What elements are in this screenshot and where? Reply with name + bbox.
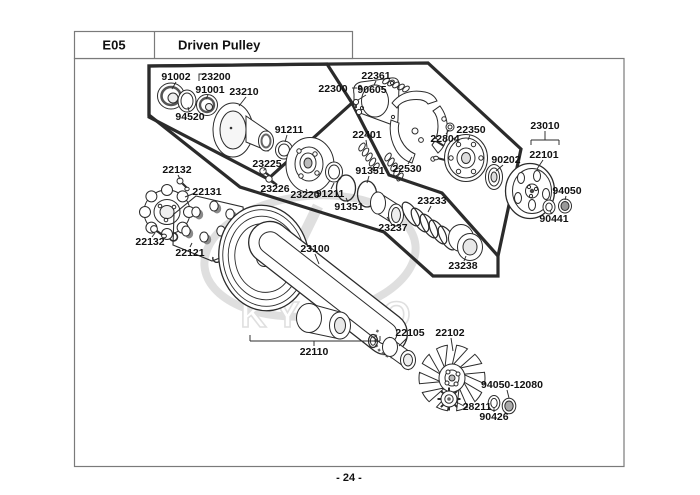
part-label-22121: 22121 (175, 247, 204, 259)
part-label-22131: 22131 (192, 186, 221, 198)
section-code: E05 (102, 38, 125, 53)
catalog-page: KYMCO E05 Driven Pulley - 24 - (0, 0, 700, 495)
washer-90441-drawing (543, 200, 555, 214)
part-label-22132-bot: 22132 (135, 236, 164, 248)
part-label-22132-top: 22132 (162, 164, 191, 176)
part-label-23233: 23233 (417, 195, 446, 207)
part-label-91211-mid: 91211 (316, 188, 345, 200)
ring-91211-mid-drawing (326, 162, 343, 182)
part-label-23238: 23238 (448, 260, 477, 272)
part-label-23010: 23010 (530, 120, 559, 132)
part-label-22101: 22101 (529, 149, 558, 161)
pulley-23220-drawing (286, 138, 334, 193)
part-label-94520: 94520 (175, 111, 204, 123)
part-label-22350: 22350 (456, 124, 485, 136)
part-label-90426: 90426 (479, 411, 508, 423)
part-label-22102: 22102 (435, 327, 464, 339)
part-label-91002: 91002 (161, 71, 190, 83)
part-label-91351-low: 91351 (334, 201, 363, 213)
part-label-90441: 90441 (539, 213, 568, 225)
part-label-91351-up: 91351 (355, 165, 384, 177)
part-label-23225: 23225 (252, 158, 281, 170)
page-background (0, 0, 700, 495)
part-label-22401: 22401 (352, 129, 381, 141)
page-number: - 24 - (336, 472, 362, 484)
part-label-22110: 22110 (300, 346, 329, 358)
page-title: Driven Pulley (178, 38, 261, 53)
part-label-22300: 22300 (318, 83, 347, 95)
part-label-91211-top: 91211 (275, 124, 304, 136)
part-label-23237: 23237 (378, 222, 407, 234)
bearing-90202-drawing (486, 165, 503, 190)
part-label-23100: 23100 (300, 243, 329, 255)
part-label-23226: 23226 (260, 183, 289, 195)
part-label-94050: 94050 (552, 185, 581, 197)
part-label-94050-12080: 94050-12080 (481, 379, 543, 391)
ratchet-28211-drawing (438, 388, 461, 411)
part-label-22105: 22105 (395, 327, 424, 339)
part-label-90605: 90605 (357, 84, 386, 96)
part-label-91001: 91001 (195, 84, 224, 96)
washer-94520-drawing (178, 90, 196, 112)
part-label-22804: 22804 (430, 133, 459, 145)
part-label-22361: 22361 (361, 70, 390, 82)
part-label-90202: 90202 (491, 154, 520, 166)
part-label-23200: 23200 (201, 71, 230, 83)
parts-diagram: KYMCO E05 Driven Pulley - 24 - (0, 0, 700, 495)
nut-94050-drawing (559, 199, 572, 213)
part-label-22530: 22530 (392, 163, 421, 175)
part-label-23210: 23210 (229, 86, 258, 98)
